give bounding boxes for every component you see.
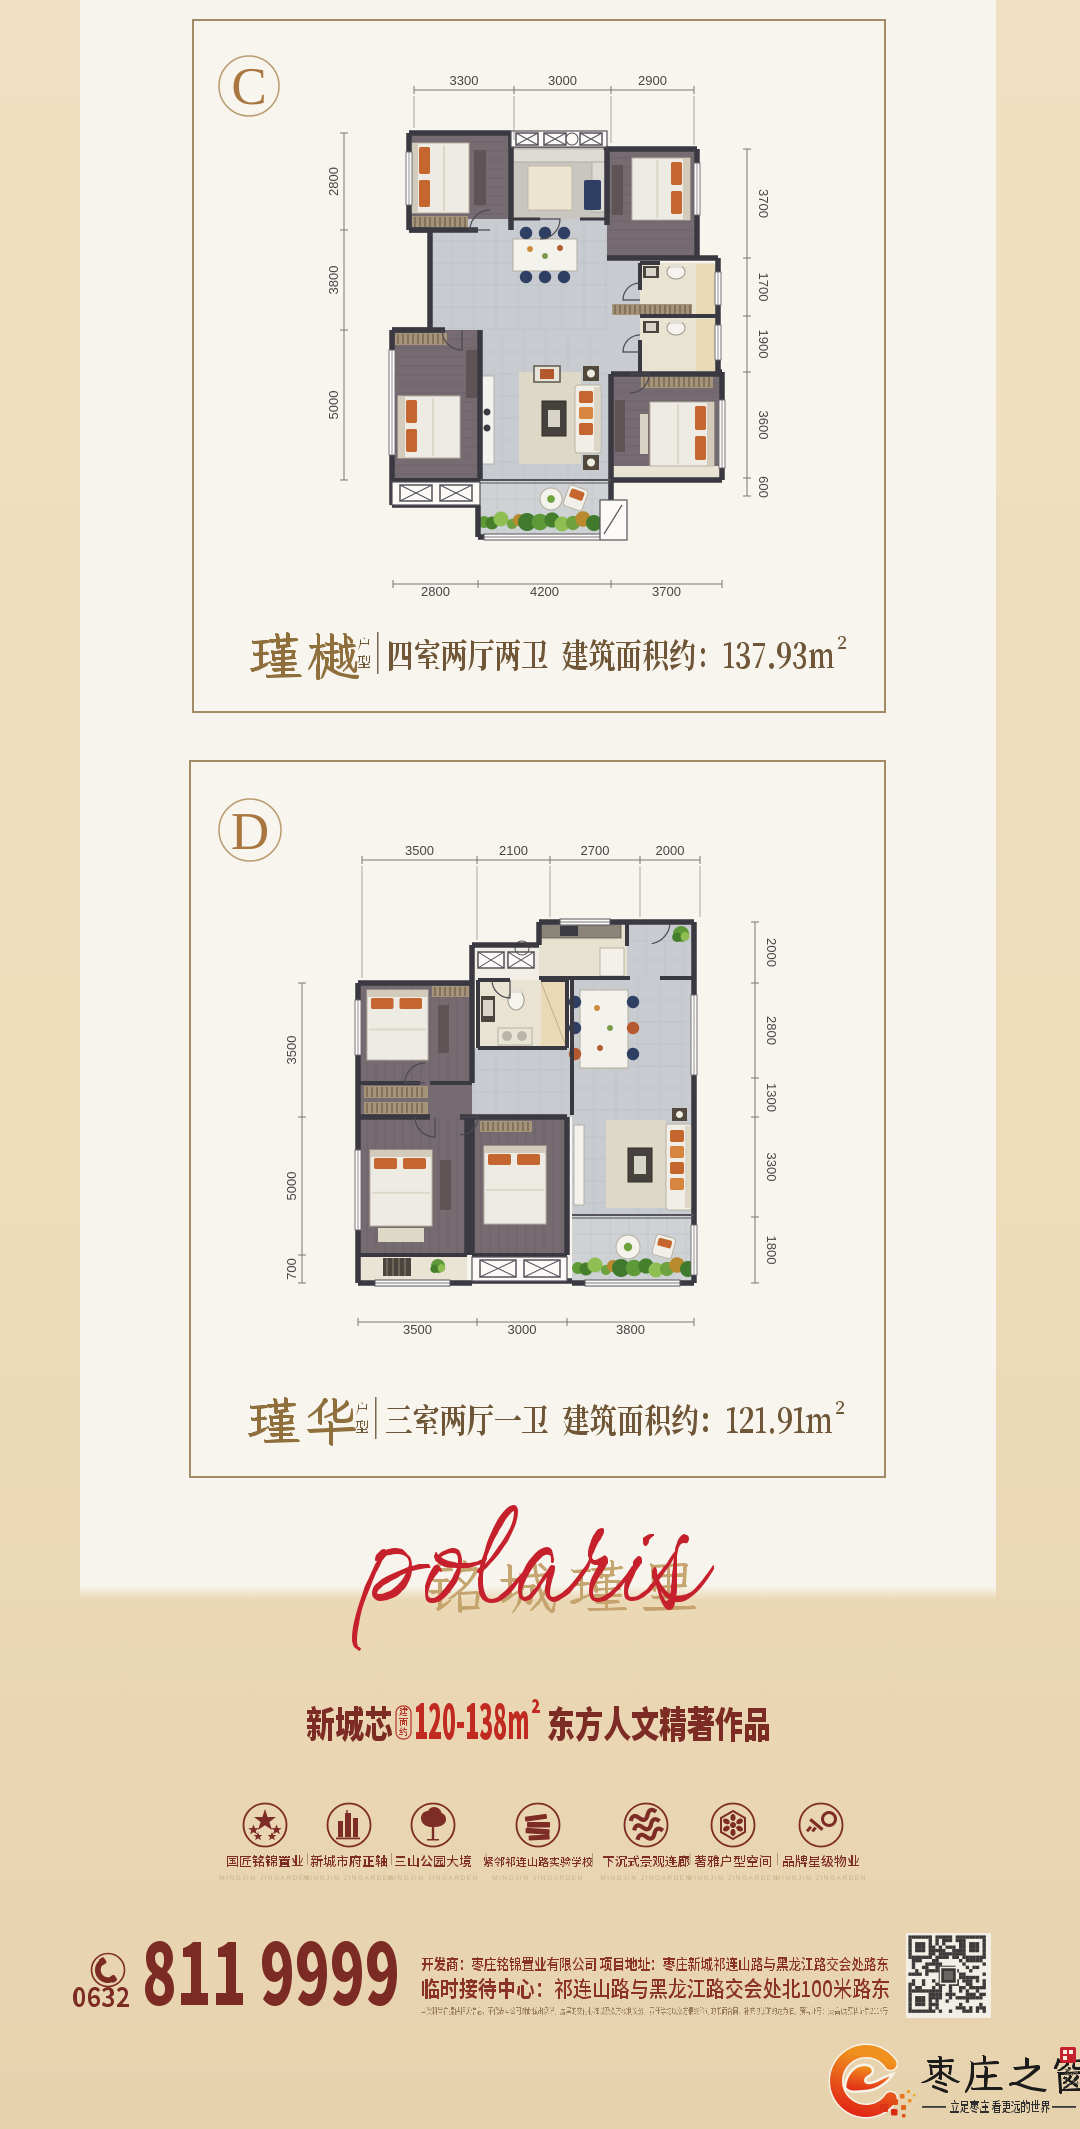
svg-text:3300: 3300 <box>764 1153 779 1182</box>
svg-text:3500: 3500 <box>403 1322 432 1337</box>
svg-text:3700: 3700 <box>756 189 771 218</box>
svg-text:3000: 3000 <box>548 73 577 88</box>
svg-text:3700: 3700 <box>652 584 681 599</box>
svg-text:1900: 1900 <box>756 330 771 359</box>
svg-text:MINGJIN JINGARDEN: MINGJIN JINGARDEN <box>687 1875 779 1882</box>
svg-text:2100: 2100 <box>499 843 528 858</box>
svg-text:5000: 5000 <box>326 391 341 420</box>
svg-text:3800: 3800 <box>616 1322 645 1337</box>
svg-text:MINGJIN JINGARDEN: MINGJIN JINGARDEN <box>303 1875 395 1882</box>
svg-text:C: C <box>231 58 266 116</box>
svg-text:2000: 2000 <box>656 843 685 858</box>
svg-text:3500: 3500 <box>284 1036 299 1065</box>
svg-text:4200: 4200 <box>530 584 559 599</box>
svg-text:MINGJIN JINGARDEN: MINGJIN JINGARDEN <box>600 1875 692 1882</box>
svg-text:1300: 1300 <box>764 1083 779 1112</box>
svg-text:2800: 2800 <box>421 584 450 599</box>
svg-text:600: 600 <box>756 476 771 498</box>
svg-text:2900: 2900 <box>638 73 667 88</box>
svg-text:MINGJIN JINGARDEN: MINGJIN JINGARDEN <box>387 1875 479 1882</box>
svg-text:2000: 2000 <box>764 938 779 967</box>
svg-text:700: 700 <box>284 1258 299 1280</box>
svg-text:3300: 3300 <box>450 73 479 88</box>
svg-text:MINGJIN JINGARDEN: MINGJIN JINGARDEN <box>219 1875 311 1882</box>
svg-text:3500: 3500 <box>405 843 434 858</box>
svg-text:5000: 5000 <box>284 1172 299 1201</box>
svg-text:2800: 2800 <box>326 167 341 196</box>
svg-text:MINGJIN JINGARDEN: MINGJIN JINGARDEN <box>775 1875 867 1882</box>
svg-text:3000: 3000 <box>508 1322 537 1337</box>
svg-text:1700: 1700 <box>756 273 771 302</box>
svg-text:D: D <box>231 803 269 861</box>
svg-text:1800: 1800 <box>764 1236 779 1265</box>
svg-text:MINGJIN JINGARDEN: MINGJIN JINGARDEN <box>492 1875 584 1882</box>
svg-text:2800: 2800 <box>764 1016 779 1045</box>
svg-text:3600: 3600 <box>756 411 771 440</box>
svg-text:2700: 2700 <box>581 843 610 858</box>
svg-text:3800: 3800 <box>326 266 341 295</box>
